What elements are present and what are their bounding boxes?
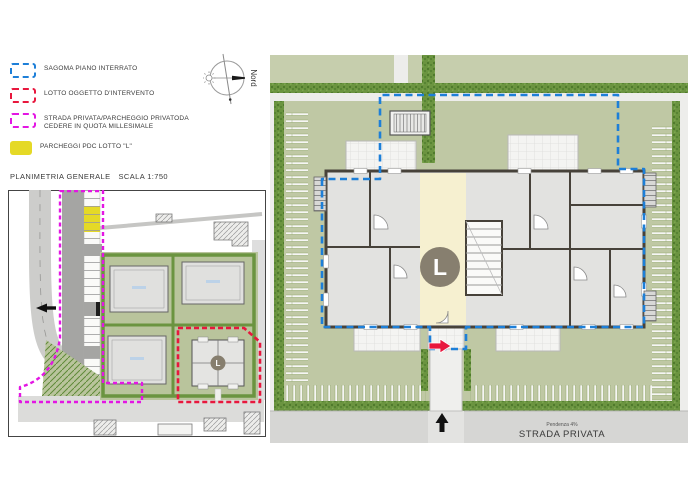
- pergola-strip-left: [286, 109, 308, 397]
- building-floor-plan: L: [314, 169, 656, 330]
- existing-building: [204, 418, 226, 431]
- north-compass: Nord: [203, 50, 259, 108]
- road-name-label: STRADA PRIVATA: [519, 429, 605, 440]
- pergola-strip-right: [652, 125, 672, 401]
- staircase: [466, 221, 502, 295]
- existing-building: [244, 412, 260, 434]
- existing-building: [158, 424, 192, 435]
- legend-item-lot: LOTTO OGGETTO D'INTERVENTO: [10, 87, 225, 103]
- lot-l-label: L: [216, 359, 221, 368]
- lot-l-label: L: [433, 254, 447, 280]
- window: [354, 169, 367, 174]
- exterior-stair: [644, 173, 656, 207]
- legend-label: STRADA PRIVATA/PARCHEGGIO PRIVATODA CEDE…: [44, 112, 209, 131]
- lot-l-detail-plan: L Pendenza 4% STRADA PRIVATA: [270, 55, 688, 445]
- pergola-strip-bottom-left: [286, 385, 426, 401]
- hedge-bottom: [274, 401, 672, 411]
- pergola-strip-bottom-right: [470, 385, 652, 401]
- vent-grate: [390, 111, 430, 135]
- road-slope-label: Pendenza 4%: [546, 422, 578, 428]
- legend-item-basement: SAGOMA PIANO INTERRATO: [10, 62, 225, 78]
- hedge-row-top: [270, 83, 688, 93]
- drawing-sheet: SAGOMA PIANO INTERRATO LOTTO OGGETTO D'I…: [0, 0, 690, 500]
- entrance-walkway: [430, 347, 462, 411]
- plan-title: PLANIMETRIA GENERALESCALA 1:750: [10, 172, 168, 181]
- building-b: [182, 262, 244, 304]
- window: [588, 169, 601, 174]
- road-crossing: [428, 411, 464, 443]
- private-road: [270, 411, 688, 443]
- existing-building: [94, 420, 116, 435]
- window: [518, 169, 531, 174]
- building-c: [108, 336, 166, 384]
- existing-building: [156, 214, 172, 222]
- legend-item-private-road: STRADA PRIVATA/PARCHEGGIO PRIVATODA CEDE…: [10, 112, 225, 131]
- terrace: [496, 325, 560, 351]
- north-arrow-icon: [232, 76, 245, 80]
- hedge-left: [274, 101, 284, 411]
- exterior-stair: [314, 177, 326, 211]
- window: [388, 169, 401, 174]
- general-site-plan: L: [8, 190, 266, 437]
- compass-north-label: Nord: [249, 69, 258, 86]
- legend-label: LOTTO OGGETTO D'INTERVENTO: [44, 87, 154, 98]
- yellow-swatch: [10, 141, 32, 155]
- exterior-stair: [644, 291, 656, 321]
- legend-label: SAGOMA PIANO INTERRATO: [44, 62, 137, 73]
- window: [324, 293, 329, 306]
- bush: [464, 349, 471, 391]
- plan-scale: SCALA 1:750: [119, 172, 168, 181]
- building-a: [110, 266, 168, 312]
- window: [324, 255, 329, 268]
- legend: SAGOMA PIANO INTERRATO LOTTO OGGETTO D'I…: [10, 62, 225, 164]
- magenta-dashed-swatch: [10, 113, 36, 128]
- plan-title-text: PLANIMETRIA GENERALE: [10, 172, 111, 181]
- blue-dashed-swatch: [10, 63, 36, 78]
- bush: [421, 349, 428, 391]
- terrace: [508, 135, 578, 173]
- red-dashed-swatch: [10, 88, 36, 103]
- hedge-divider: [422, 55, 435, 163]
- hedge-right: [672, 101, 680, 411]
- compass-icon: Nord: [203, 50, 259, 108]
- legend-label: PARCHEGGI PDC LOTTO "L": [40, 140, 132, 151]
- legend-item-parking: PARCHEGGI PDC LOTTO "L": [10, 140, 225, 155]
